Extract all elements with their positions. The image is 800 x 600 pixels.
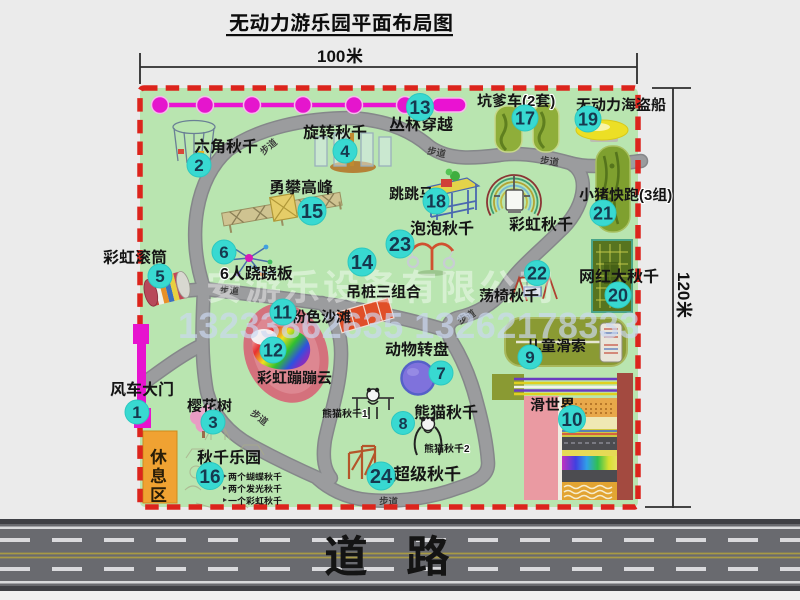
svg-text:18: 18	[426, 192, 446, 212]
svg-text:1: 1	[362, 409, 368, 420]
svg-text:5: 5	[155, 267, 164, 286]
svg-text:(3: (3	[639, 187, 652, 204]
svg-text:24: 24	[370, 466, 393, 488]
svg-text:22: 22	[527, 264, 547, 284]
svg-text:8: 8	[399, 416, 408, 433]
svg-text:120: 120	[674, 272, 693, 300]
svg-text:2: 2	[194, 156, 203, 175]
svg-text:11: 11	[273, 303, 292, 323]
svg-text:): )	[667, 187, 672, 204]
svg-text:23: 23	[389, 234, 411, 256]
svg-text:1: 1	[132, 403, 141, 422]
svg-text:13: 13	[409, 98, 430, 119]
svg-text:12: 12	[263, 341, 283, 361]
svg-text:7: 7	[436, 364, 445, 383]
svg-text:13233862635 13262178333: 13233862635 13262178333	[178, 305, 640, 346]
svg-text:10: 10	[561, 410, 582, 431]
svg-text:4: 4	[340, 142, 350, 161]
svg-text:21: 21	[593, 204, 613, 224]
svg-text:19: 19	[578, 110, 598, 130]
svg-text:6: 6	[219, 243, 228, 262]
svg-text:3: 3	[208, 413, 217, 432]
svg-text:6: 6	[220, 266, 229, 283]
svg-text:9: 9	[525, 348, 534, 367]
svg-text:15: 15	[301, 201, 323, 223]
svg-text:17: 17	[515, 109, 535, 129]
svg-text:20: 20	[608, 286, 628, 306]
svg-text:2: 2	[464, 444, 470, 455]
svg-text:100: 100	[317, 47, 345, 66]
svg-text:16: 16	[199, 467, 220, 488]
svg-text:): )	[550, 93, 555, 110]
svg-text:14: 14	[351, 252, 374, 274]
